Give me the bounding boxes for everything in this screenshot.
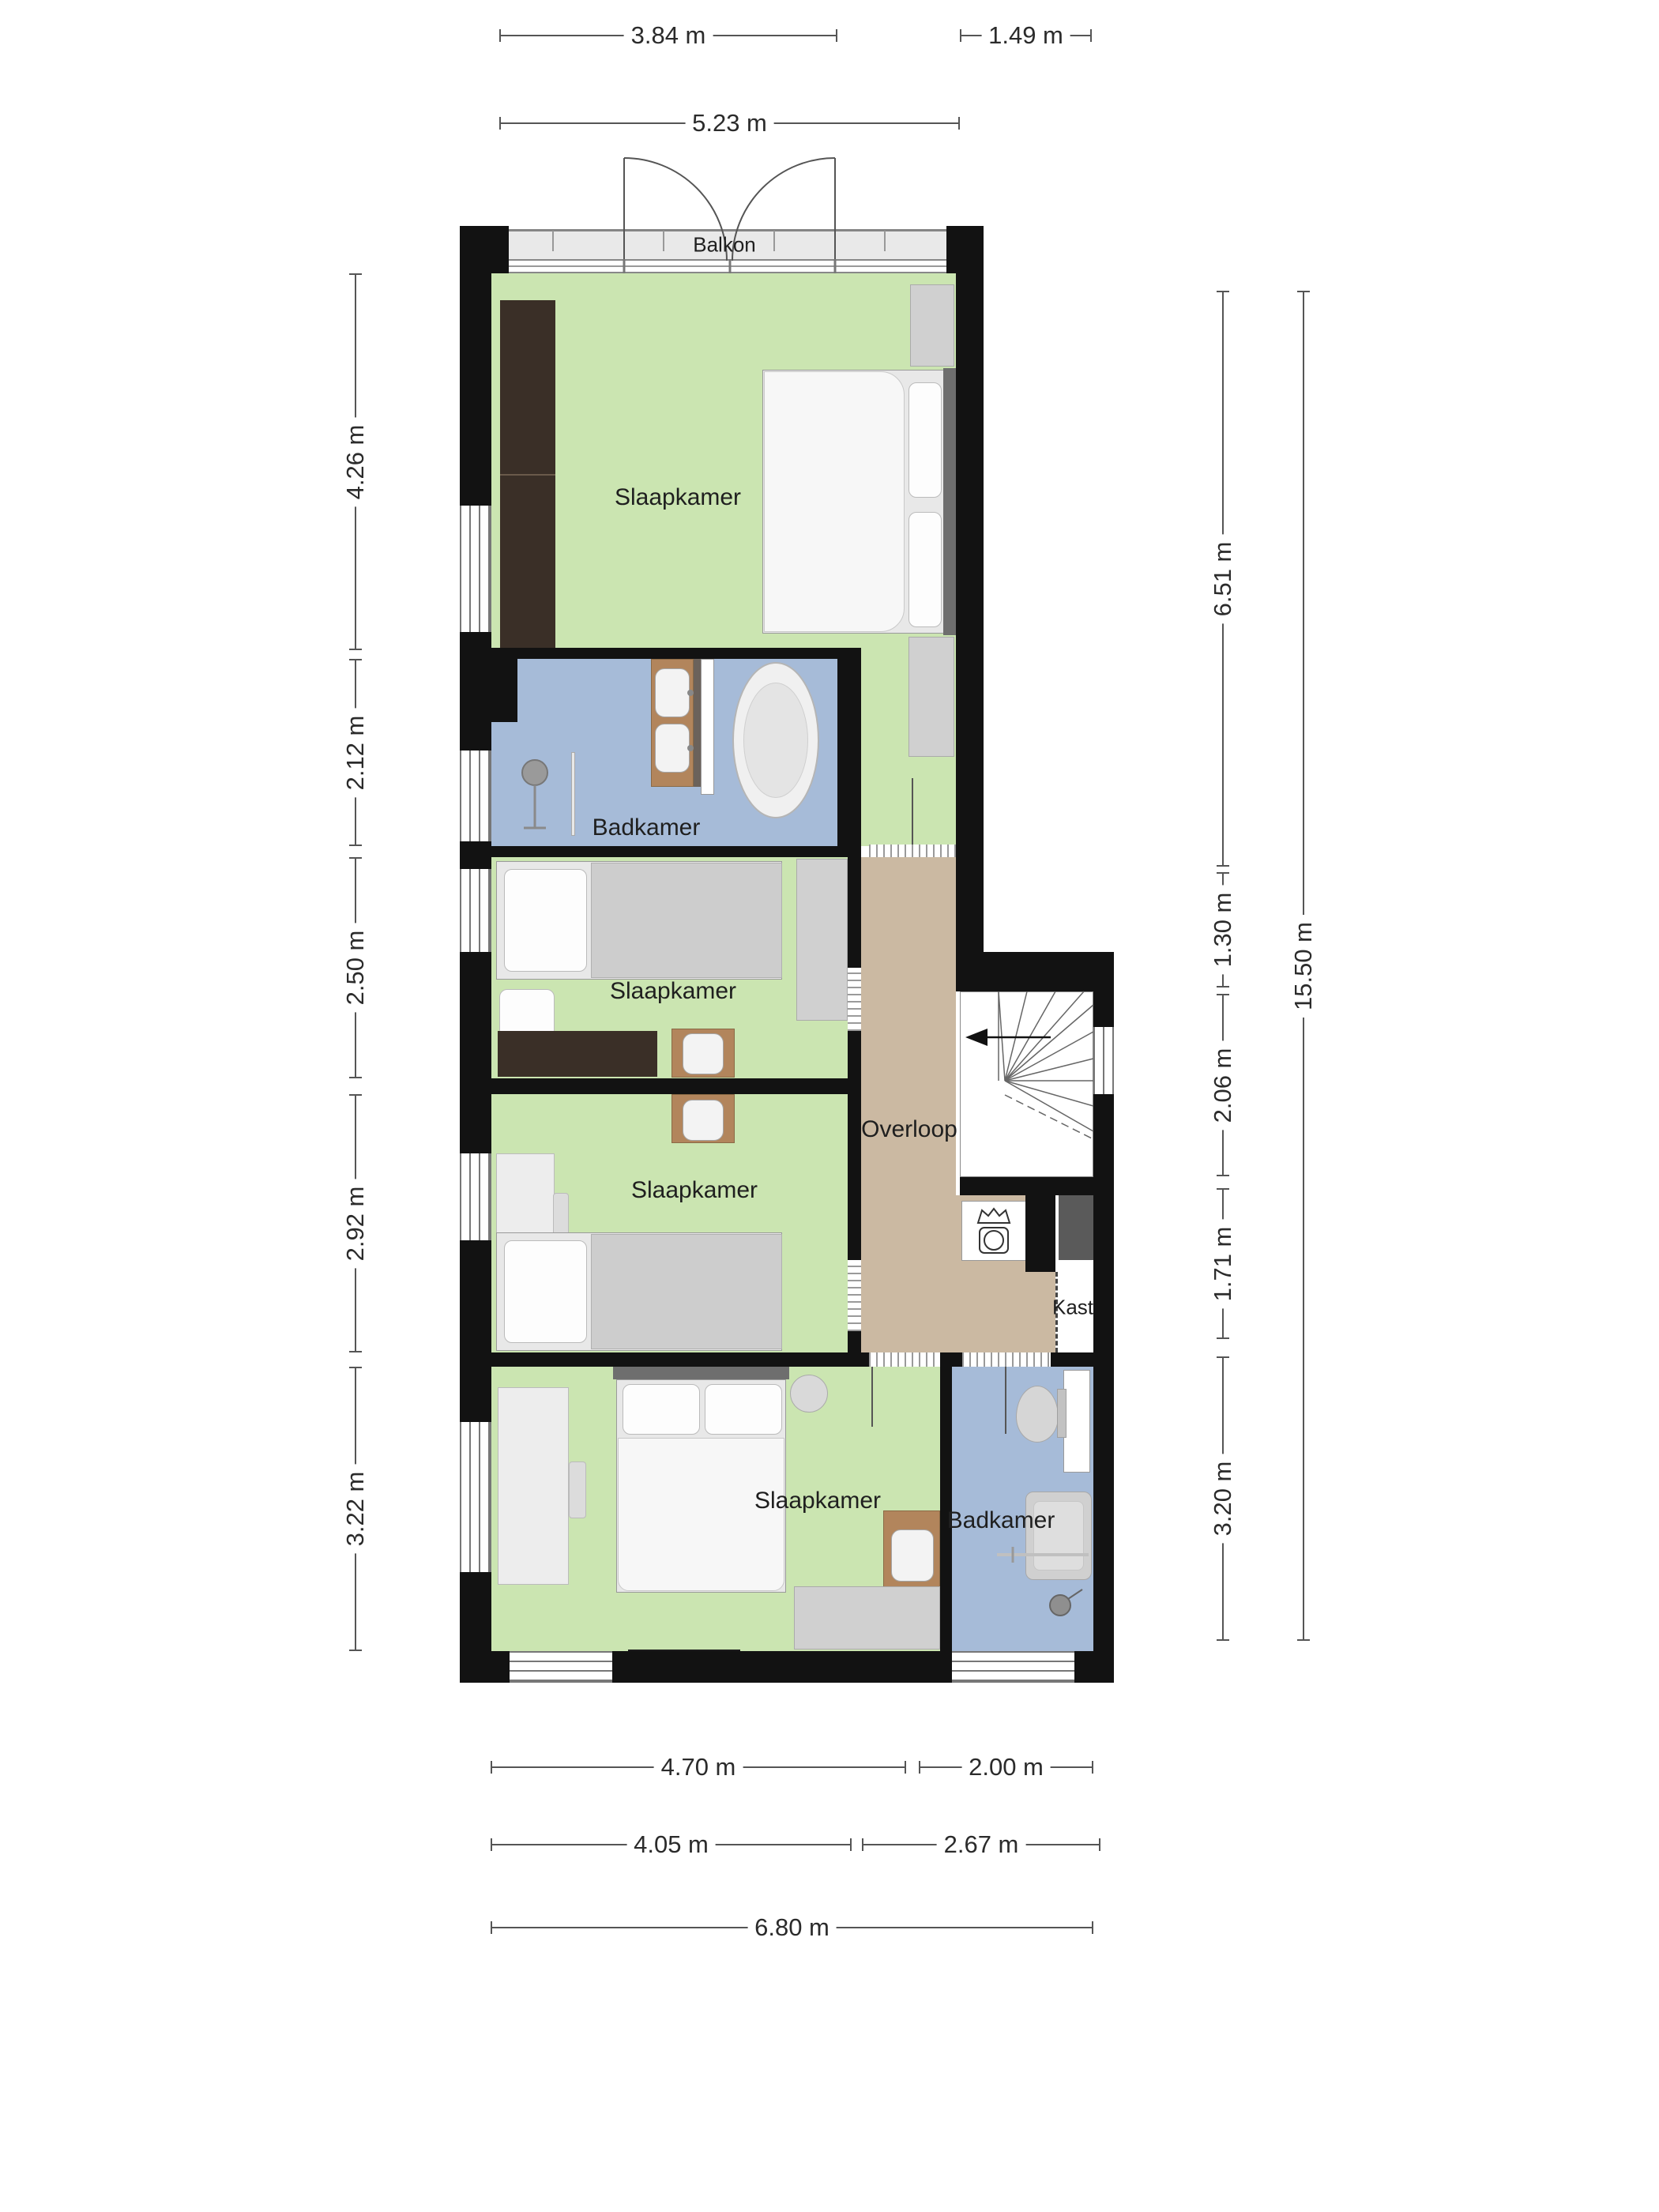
- dimension: 4.05 m: [491, 1838, 852, 1852]
- dimension-label: 2.92 m: [340, 1179, 371, 1268]
- dimension: 3.22 m: [348, 1367, 363, 1651]
- dimension: 5.23 m: [499, 116, 960, 130]
- dimension-label: 4.26 m: [340, 417, 371, 506]
- dimension-label: 3.20 m: [1207, 1454, 1239, 1544]
- dimension: 2.12 m: [348, 659, 363, 846]
- dimension: 2.67 m: [862, 1838, 1100, 1852]
- dimension-label: 3.84 m: [624, 20, 713, 51]
- dimension-label: 2.12 m: [340, 708, 371, 797]
- dimension: 2.00 m: [919, 1760, 1093, 1774]
- dimension-label: 1.49 m: [981, 20, 1070, 51]
- dimension: 6.51 m: [1216, 291, 1230, 867]
- dimension-label: 4.70 m: [654, 1751, 743, 1783]
- dimension-label: 15.50 m: [1288, 914, 1319, 1017]
- dimension: 4.70 m: [491, 1760, 906, 1774]
- dimension: 3.20 m: [1216, 1356, 1230, 1641]
- dimension: 15.50 m: [1296, 291, 1311, 1641]
- dimension-label: 2.00 m: [961, 1751, 1051, 1783]
- dimension-label: 1.30 m: [1207, 886, 1239, 975]
- dimension: 2.92 m: [348, 1094, 363, 1352]
- dimension-label: 2.06 m: [1207, 1040, 1239, 1130]
- dimension: 1.49 m: [960, 28, 1092, 43]
- dimension-label: 2.67 m: [937, 1829, 1026, 1860]
- floor-plan-canvas: BalkonSlaapkamerBadkamerSlaapkamerSlaapk…: [0, 0, 1659, 2212]
- dimension-label: 6.80 m: [747, 1912, 837, 1943]
- dimension-label: 5.23 m: [685, 107, 774, 139]
- dimension-label: 4.05 m: [626, 1829, 716, 1860]
- dimension: 1.71 m: [1216, 1188, 1230, 1339]
- dimension: 2.06 m: [1216, 994, 1230, 1176]
- dimension-label: 6.51 m: [1207, 534, 1239, 623]
- dimension: 1.30 m: [1216, 872, 1230, 987]
- dimensions-layer: 3.84 m1.49 m5.23 m4.26 m2.12 m2.50 m2.92…: [0, 0, 1659, 2212]
- dimension: 6.80 m: [491, 1920, 1093, 1935]
- dimension: 2.50 m: [348, 857, 363, 1078]
- dimension-label: 2.50 m: [340, 924, 371, 1013]
- dimension-label: 1.71 m: [1207, 1219, 1239, 1308]
- dimension-label: 3.22 m: [340, 1465, 371, 1554]
- dimension: 3.84 m: [499, 28, 837, 43]
- dimension: 4.26 m: [348, 273, 363, 650]
